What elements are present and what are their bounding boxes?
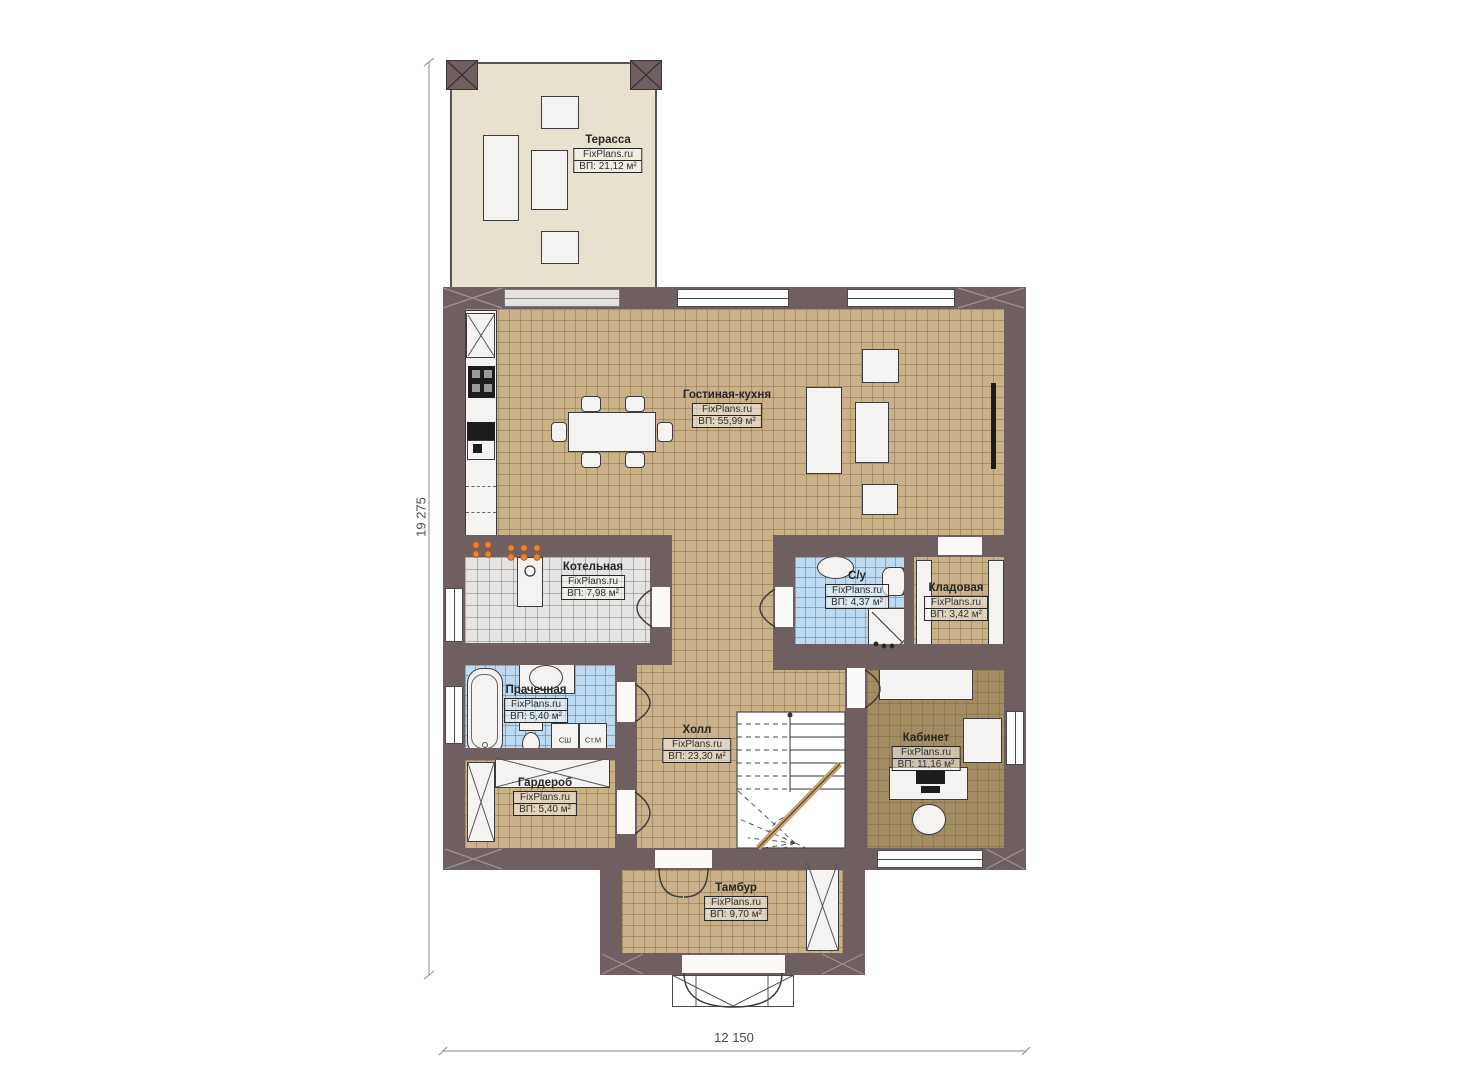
sink-bowl — [473, 444, 482, 453]
room-label-boiler: Котельная FixPlans.ru ВП: 7,98 м² — [561, 561, 625, 600]
room-name: С/у — [848, 570, 866, 582]
dryer-label: СШ — [559, 736, 571, 745]
boiler-unit — [517, 557, 543, 607]
brand-text: FixPlans.ru — [705, 897, 767, 909]
oven-knob — [484, 370, 492, 378]
label-box: FixPlans.ru ВП: 3,42 м² — [924, 596, 988, 621]
coffee-table — [855, 402, 889, 463]
dining-chair — [625, 396, 645, 412]
entrance-door-opening — [682, 955, 785, 973]
wall-right — [1004, 287, 1026, 870]
washer-label: Ст.М — [585, 736, 601, 745]
dimension-vertical: 19 275 — [414, 497, 429, 537]
area-text: ВП: 23,30 м² — [663, 751, 730, 762]
room-label-vestibule: Тамбур FixPlans.ru ВП: 9,70 м² — [704, 882, 768, 921]
label-box: FixPlans.ru ВП: 5,40 м² — [504, 698, 568, 723]
microwave-window — [472, 384, 480, 392]
brand-text: FixPlans.ru — [663, 739, 730, 751]
office-door — [847, 668, 865, 708]
label-box: FixPlans.ru ВП: 11,16 м² — [892, 746, 961, 771]
room-name: Гостиная-кухня — [683, 389, 771, 401]
brand-text: FixPlans.ru — [514, 792, 576, 804]
office-chair — [912, 804, 946, 835]
kitchen-sink-dark — [467, 422, 495, 440]
laundry-toilet-tank — [519, 722, 543, 731]
window-bottom-office — [877, 850, 983, 868]
tv — [991, 383, 996, 469]
bathroom-door — [775, 587, 793, 627]
area-text: ВП: 4,37 м² — [826, 597, 888, 608]
dining-chair — [581, 396, 601, 412]
storage-door-opening — [938, 537, 982, 555]
terrace-armchair-top — [541, 96, 579, 129]
wardrobe-closet-left — [467, 762, 495, 842]
window-top-1 — [677, 289, 789, 307]
cabinet-divider — [466, 486, 496, 487]
room-label-terrace: Терасса FixPlans.ru ВП: 21,12 м² — [573, 134, 642, 173]
area-text: ВП: 21,12 м² — [574, 161, 641, 172]
label-box: FixPlans.ru ВП: 4,37 м² — [825, 584, 889, 609]
room-name: Холл — [683, 724, 712, 736]
dining-chair — [657, 422, 673, 442]
laundry-door — [617, 682, 635, 722]
room-name: Тамбур — [715, 882, 757, 894]
room-label-storage: Кладовая FixPlans.ru ВП: 3,42 м² — [924, 582, 988, 621]
keyboard — [921, 786, 940, 793]
brand-text: FixPlans.ru — [826, 585, 888, 597]
terrace-armchair-bottom — [541, 231, 579, 264]
window-right-office — [1006, 711, 1024, 765]
dimension-horizontal: 12 150 — [714, 1030, 754, 1045]
boiler-door — [652, 587, 670, 627]
room-name: Гардероб — [518, 777, 572, 789]
room-name: Котельная — [563, 561, 623, 573]
brand-text: FixPlans.ru — [925, 597, 987, 609]
area-text: ВП: 11,16 м² — [893, 759, 960, 770]
window-left-boiler — [445, 588, 463, 642]
office-cabinet — [963, 718, 1002, 763]
living-armchair-bottom — [862, 484, 898, 515]
hall-vestibule-double-door — [655, 850, 712, 868]
wall-left — [443, 287, 465, 870]
storage-shelf-right — [988, 560, 1004, 646]
bathroom-wall-bottom — [773, 644, 1004, 670]
floor-plan: СШ Ст.М — [0, 0, 1473, 1080]
room-label-bathroom: С/у FixPlans.ru ВП: 4,37 м² — [825, 570, 889, 609]
brand-text: FixPlans.ru — [562, 576, 624, 588]
microwave-window — [484, 384, 492, 392]
dining-chair — [625, 452, 645, 468]
dining-table — [568, 412, 656, 452]
room-label-wardrobe: Гардероб FixPlans.ru ВП: 5,40 м² — [513, 777, 577, 816]
terrace-pillar-left — [446, 60, 478, 90]
living-armchair-top — [862, 349, 899, 383]
label-box: FixPlans.ru ВП: 55,99 м² — [692, 403, 761, 428]
terrace-pillar-right — [630, 60, 662, 90]
terrace-table — [531, 150, 568, 210]
cabinet-divider — [466, 512, 496, 513]
boiler-wall-top — [465, 535, 672, 557]
room-label-hall: Холл FixPlans.ru ВП: 23,30 м² — [662, 724, 731, 763]
room-label-living-kitchen: Гостиная-кухня FixPlans.ru ВП: 55,99 м² — [683, 389, 771, 428]
wardrobe-door — [617, 790, 635, 834]
window-left-laundry — [445, 686, 463, 744]
brand-text: FixPlans.ru — [574, 149, 641, 161]
area-text: ВП: 5,40 м² — [514, 804, 576, 815]
living-sofa — [806, 387, 842, 474]
brand-text: FixPlans.ru — [505, 699, 567, 711]
label-box: FixPlans.ru ВП: 7,98 м² — [561, 575, 625, 600]
area-text: ВП: 9,70 м² — [705, 909, 767, 920]
laundry-wardrobe-divider — [465, 748, 615, 760]
vestibule-closet — [806, 861, 839, 951]
area-text: ВП: 7,98 м² — [562, 588, 624, 599]
label-box: FixPlans.ru ВП: 5,40 м² — [513, 791, 577, 816]
area-text: ВП: 5,40 м² — [505, 711, 567, 722]
terrace-sliding-door — [504, 289, 620, 307]
shower — [868, 608, 908, 648]
boiler-wall-bottom — [465, 643, 672, 665]
entrance-porch — [672, 975, 794, 1007]
area-text: ВП: 3,42 м² — [925, 609, 987, 620]
office-sofa — [879, 667, 973, 700]
label-box: FixPlans.ru ВП: 9,70 м² — [704, 896, 768, 921]
room-label-laundry: Прачечная FixPlans.ru ВП: 5,40 м² — [504, 684, 568, 723]
monitor — [916, 771, 945, 784]
bathroom-storage-divider — [904, 557, 914, 644]
room-name: Терасса — [585, 134, 631, 146]
dining-chair — [581, 452, 601, 468]
room-name: Кабинет — [903, 732, 950, 744]
room-label-office: Кабинет FixPlans.ru ВП: 11,16 м² — [892, 732, 961, 771]
room-name: Кладовая — [928, 582, 983, 594]
brand-text: FixPlans.ru — [693, 404, 760, 416]
bathtub-inner — [471, 674, 498, 749]
brand-text: FixPlans.ru — [893, 747, 960, 759]
label-box: FixPlans.ru ВП: 23,30 м² — [662, 738, 731, 763]
window-top-2 — [847, 289, 955, 307]
dining-chair — [551, 422, 567, 442]
terrace-sofa — [483, 135, 519, 221]
fridge — [466, 313, 495, 358]
oven-knob — [472, 370, 480, 378]
room-name: Прачечная — [506, 684, 567, 696]
area-text: ВП: 55,99 м² — [693, 416, 760, 427]
label-box: FixPlans.ru ВП: 21,12 м² — [573, 148, 642, 173]
